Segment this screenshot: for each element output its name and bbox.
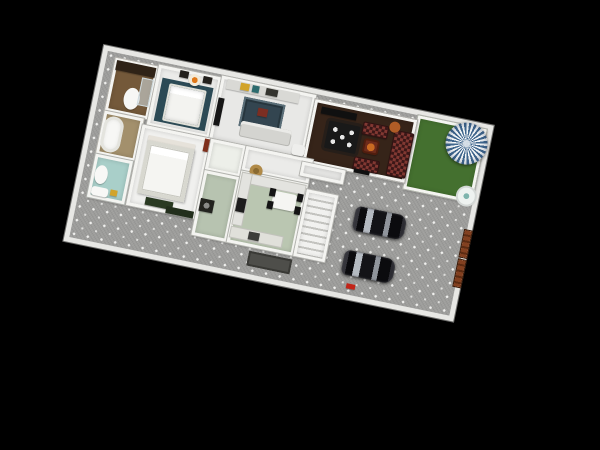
clothes-teal bbox=[252, 85, 260, 93]
bed-guest bbox=[162, 83, 207, 128]
washing-machine bbox=[198, 198, 214, 214]
armchair-lounge bbox=[362, 138, 381, 156]
chair-dark-right bbox=[202, 76, 212, 85]
armchair-white bbox=[291, 143, 306, 156]
rug-ottoman-red bbox=[257, 108, 268, 118]
chair-dark-left bbox=[179, 70, 189, 79]
towel-yellow bbox=[110, 189, 118, 196]
floor-plan-plot bbox=[63, 45, 493, 322]
render-canvas bbox=[0, 0, 600, 450]
clothes-yellow bbox=[240, 83, 250, 92]
